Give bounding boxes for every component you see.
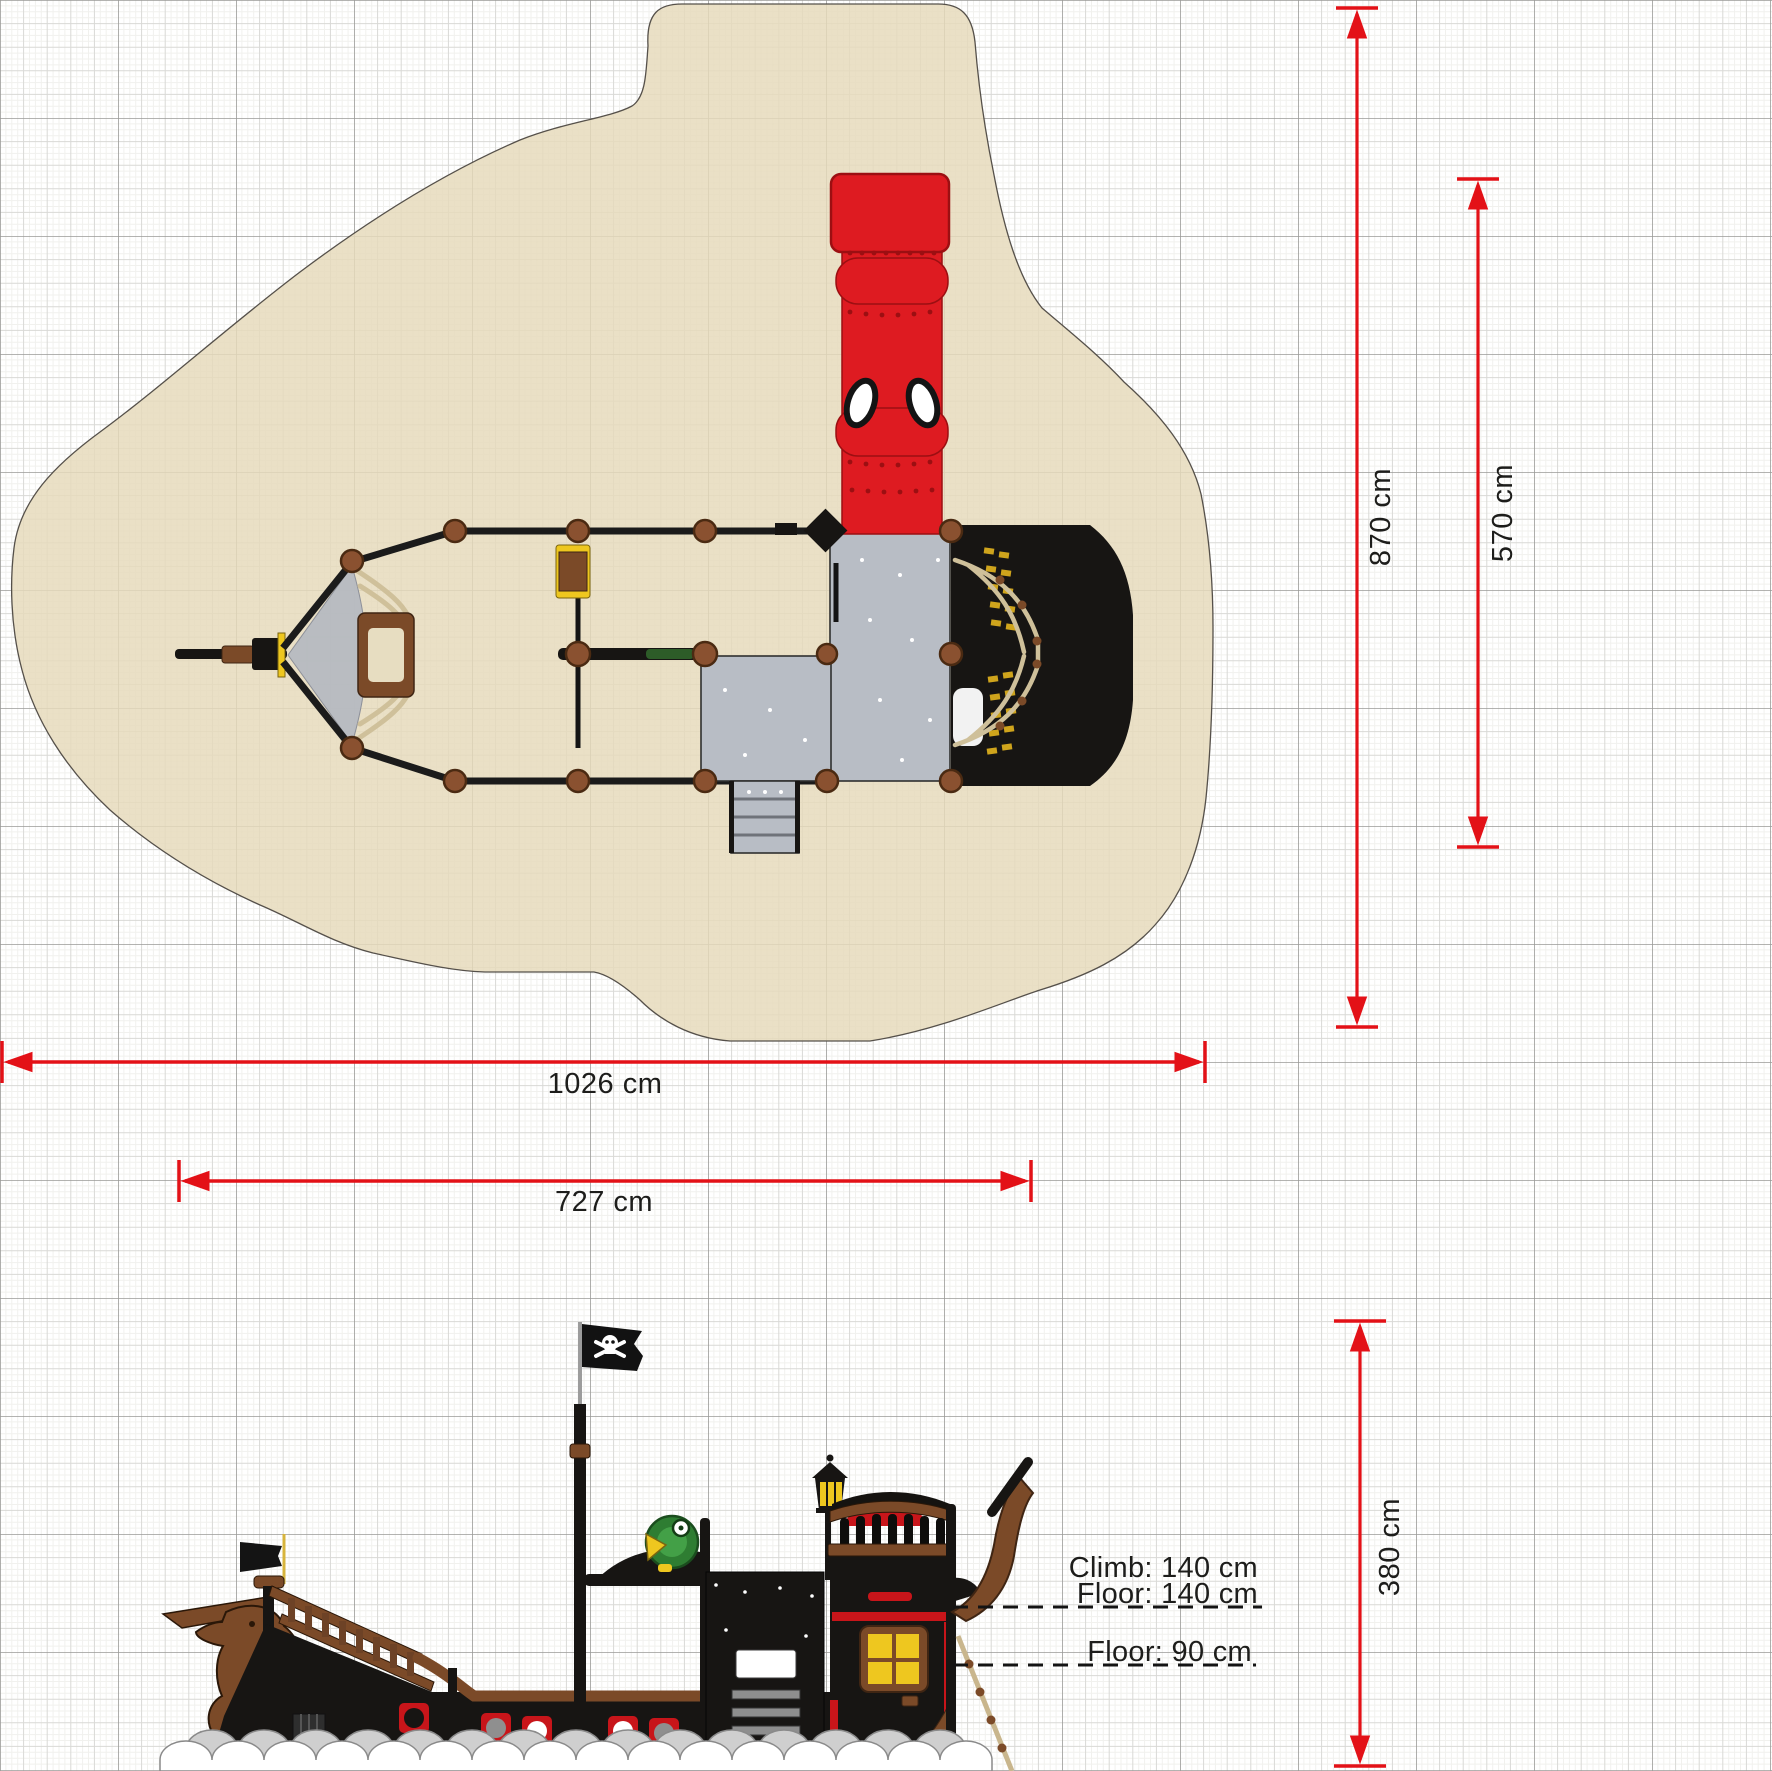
side-main-mast xyxy=(574,1404,586,1771)
label-zone-width: 870 cm xyxy=(1365,468,1397,566)
technical-drawing-canvas: 1026 cm 727 cm 870 cm 570 cm 380 cm Clim… xyxy=(0,0,1772,1771)
plan-bowsprit-wood xyxy=(222,646,254,663)
side-tower-window xyxy=(736,1650,796,1678)
plan-yardarm-sailwrap xyxy=(646,649,694,659)
side-seahorse-eye xyxy=(249,1621,255,1627)
forecastle-red-band xyxy=(832,1612,952,1621)
forecastle-rail-bottom xyxy=(828,1544,954,1556)
label-total-height: 380 cm xyxy=(1374,1498,1406,1596)
plan-stair-rail-right xyxy=(795,781,800,853)
label-inner-width: 570 cm xyxy=(1487,464,1519,562)
plan-hatch-opening xyxy=(368,628,404,682)
forecastle-handle xyxy=(868,1592,912,1601)
slide-tower-cap xyxy=(831,174,949,252)
plan-deck-main xyxy=(830,531,950,781)
label-zone-length: 1026 cm xyxy=(548,1068,663,1100)
side-mast-cleat xyxy=(570,1444,590,1458)
plan-bow-yellow-connector xyxy=(278,633,285,677)
side-platform-bar xyxy=(584,1574,710,1586)
plan-deck-mid xyxy=(701,656,831,781)
label-ship-length: 727 cm xyxy=(555,1186,653,1218)
plan-rail-fitting xyxy=(775,523,797,535)
label-floor-upper: Floor: 140 cm xyxy=(1077,1578,1258,1610)
plan-steering-box-wood xyxy=(559,552,587,591)
plan-slide-tower xyxy=(831,174,949,534)
slide-tower-ring-upper xyxy=(836,258,948,304)
plan-stair-rail-left xyxy=(729,781,734,853)
label-floor-lower: Floor: 90 cm xyxy=(1087,1636,1252,1668)
plan-stern-deck xyxy=(951,525,1133,786)
